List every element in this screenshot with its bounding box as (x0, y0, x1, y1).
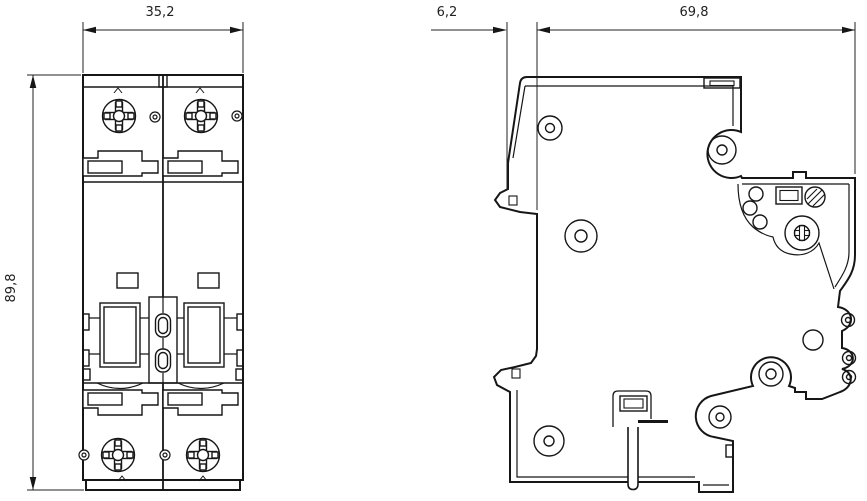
rivet (534, 426, 564, 456)
side-din-latch (613, 391, 668, 490)
clamp-bottom-left (83, 390, 158, 415)
rivet-center (544, 436, 554, 446)
dim-label-side-depth: 69,8 (680, 5, 709, 20)
toggle-frame-left-outer (100, 303, 140, 367)
edge-tab (236, 369, 243, 380)
side-terminal-details (509, 187, 856, 457)
dim-label-front-height: 89,8 (4, 274, 19, 303)
rivet-center (716, 413, 724, 421)
technical-drawing-page: 35,2 89,8 6,2 69,8 (0, 0, 867, 501)
front-terminal-clamps-bottom (83, 390, 238, 415)
rivet-center (766, 369, 776, 379)
recess-arcs (97, 383, 224, 389)
dimension-side-clip-depth: 6,2 (431, 5, 507, 190)
slotted-screw (805, 187, 825, 207)
side-window-inner (780, 191, 798, 201)
arrowhead-bottom (30, 477, 37, 490)
technical-drawing-canvas: 35,2 89,8 6,2 69,8 (0, 0, 867, 501)
arrowhead-left (83, 27, 96, 33)
clamp-top-right (163, 151, 238, 176)
rivet (709, 406, 731, 428)
dim-label-side-clip: 6,2 (437, 5, 458, 20)
label-window-right (198, 273, 219, 288)
mold-tick-marks (114, 88, 207, 481)
arrowhead-top (30, 75, 37, 88)
screw-terminal-top-left (103, 100, 136, 133)
arrowhead-left (537, 27, 550, 33)
extension-lines (27, 75, 84, 490)
pin-bottom-left (79, 450, 89, 460)
front-toggle-area (83, 297, 243, 389)
pin-top-right (232, 111, 242, 121)
dim-label-front-width: 35,2 (146, 5, 175, 20)
toggle-frame-right-outer (184, 303, 224, 367)
side-rivets (534, 116, 823, 456)
inner-wall-bottom (517, 390, 695, 477)
front-terminal-clamps-top (83, 151, 238, 176)
latch-window-inner (624, 399, 643, 408)
small-hole (753, 215, 767, 229)
screw-terminal-bottom-right (187, 439, 220, 472)
arrowhead-right (230, 27, 243, 33)
pin-bottom-right (160, 450, 170, 460)
small-hole (743, 201, 757, 215)
extension-lines (537, 22, 855, 210)
small-hole (749, 187, 763, 201)
front-screws-bottom (79, 439, 220, 472)
rivet (708, 136, 736, 164)
rivet-center (546, 124, 555, 133)
arrowhead (493, 27, 507, 33)
rivet (565, 220, 597, 252)
rivet (759, 362, 783, 386)
pin-top-left (150, 112, 160, 122)
rivet (538, 116, 562, 140)
inner-wall-top (525, 86, 733, 126)
label-window-left (117, 273, 138, 288)
clamp-top-left (83, 151, 158, 176)
arrowhead-right (842, 27, 855, 33)
dimension-front-width: 35,2 (83, 5, 243, 73)
front-label-windows (117, 273, 219, 288)
top-clip-tab-inner (710, 81, 734, 86)
screw-terminal-top-right (185, 100, 218, 133)
terminal-screw-end (785, 216, 819, 250)
clamp-bottom-right (163, 390, 238, 415)
side-inner-lines (513, 86, 849, 485)
front-view (79, 75, 243, 490)
screw-terminal-bottom-left (102, 439, 135, 472)
rivet-center (575, 230, 587, 242)
side-view (494, 77, 856, 492)
plain-hole (803, 330, 823, 350)
front-screws-top (103, 100, 243, 133)
clip-foot-notch-lower (512, 369, 520, 378)
dimension-front-height: 89,8 (4, 75, 84, 490)
clip-foot-notch-upper (509, 196, 517, 205)
side-edge-notch (726, 445, 733, 457)
latch-slot (628, 427, 638, 490)
rivet-center (717, 145, 727, 155)
dimension-side-overall-depth: 69,8 (537, 5, 855, 210)
toggle-frame-left-inner (104, 307, 136, 363)
toggle-frame-right-inner (188, 307, 220, 363)
edge-tab (83, 369, 90, 380)
